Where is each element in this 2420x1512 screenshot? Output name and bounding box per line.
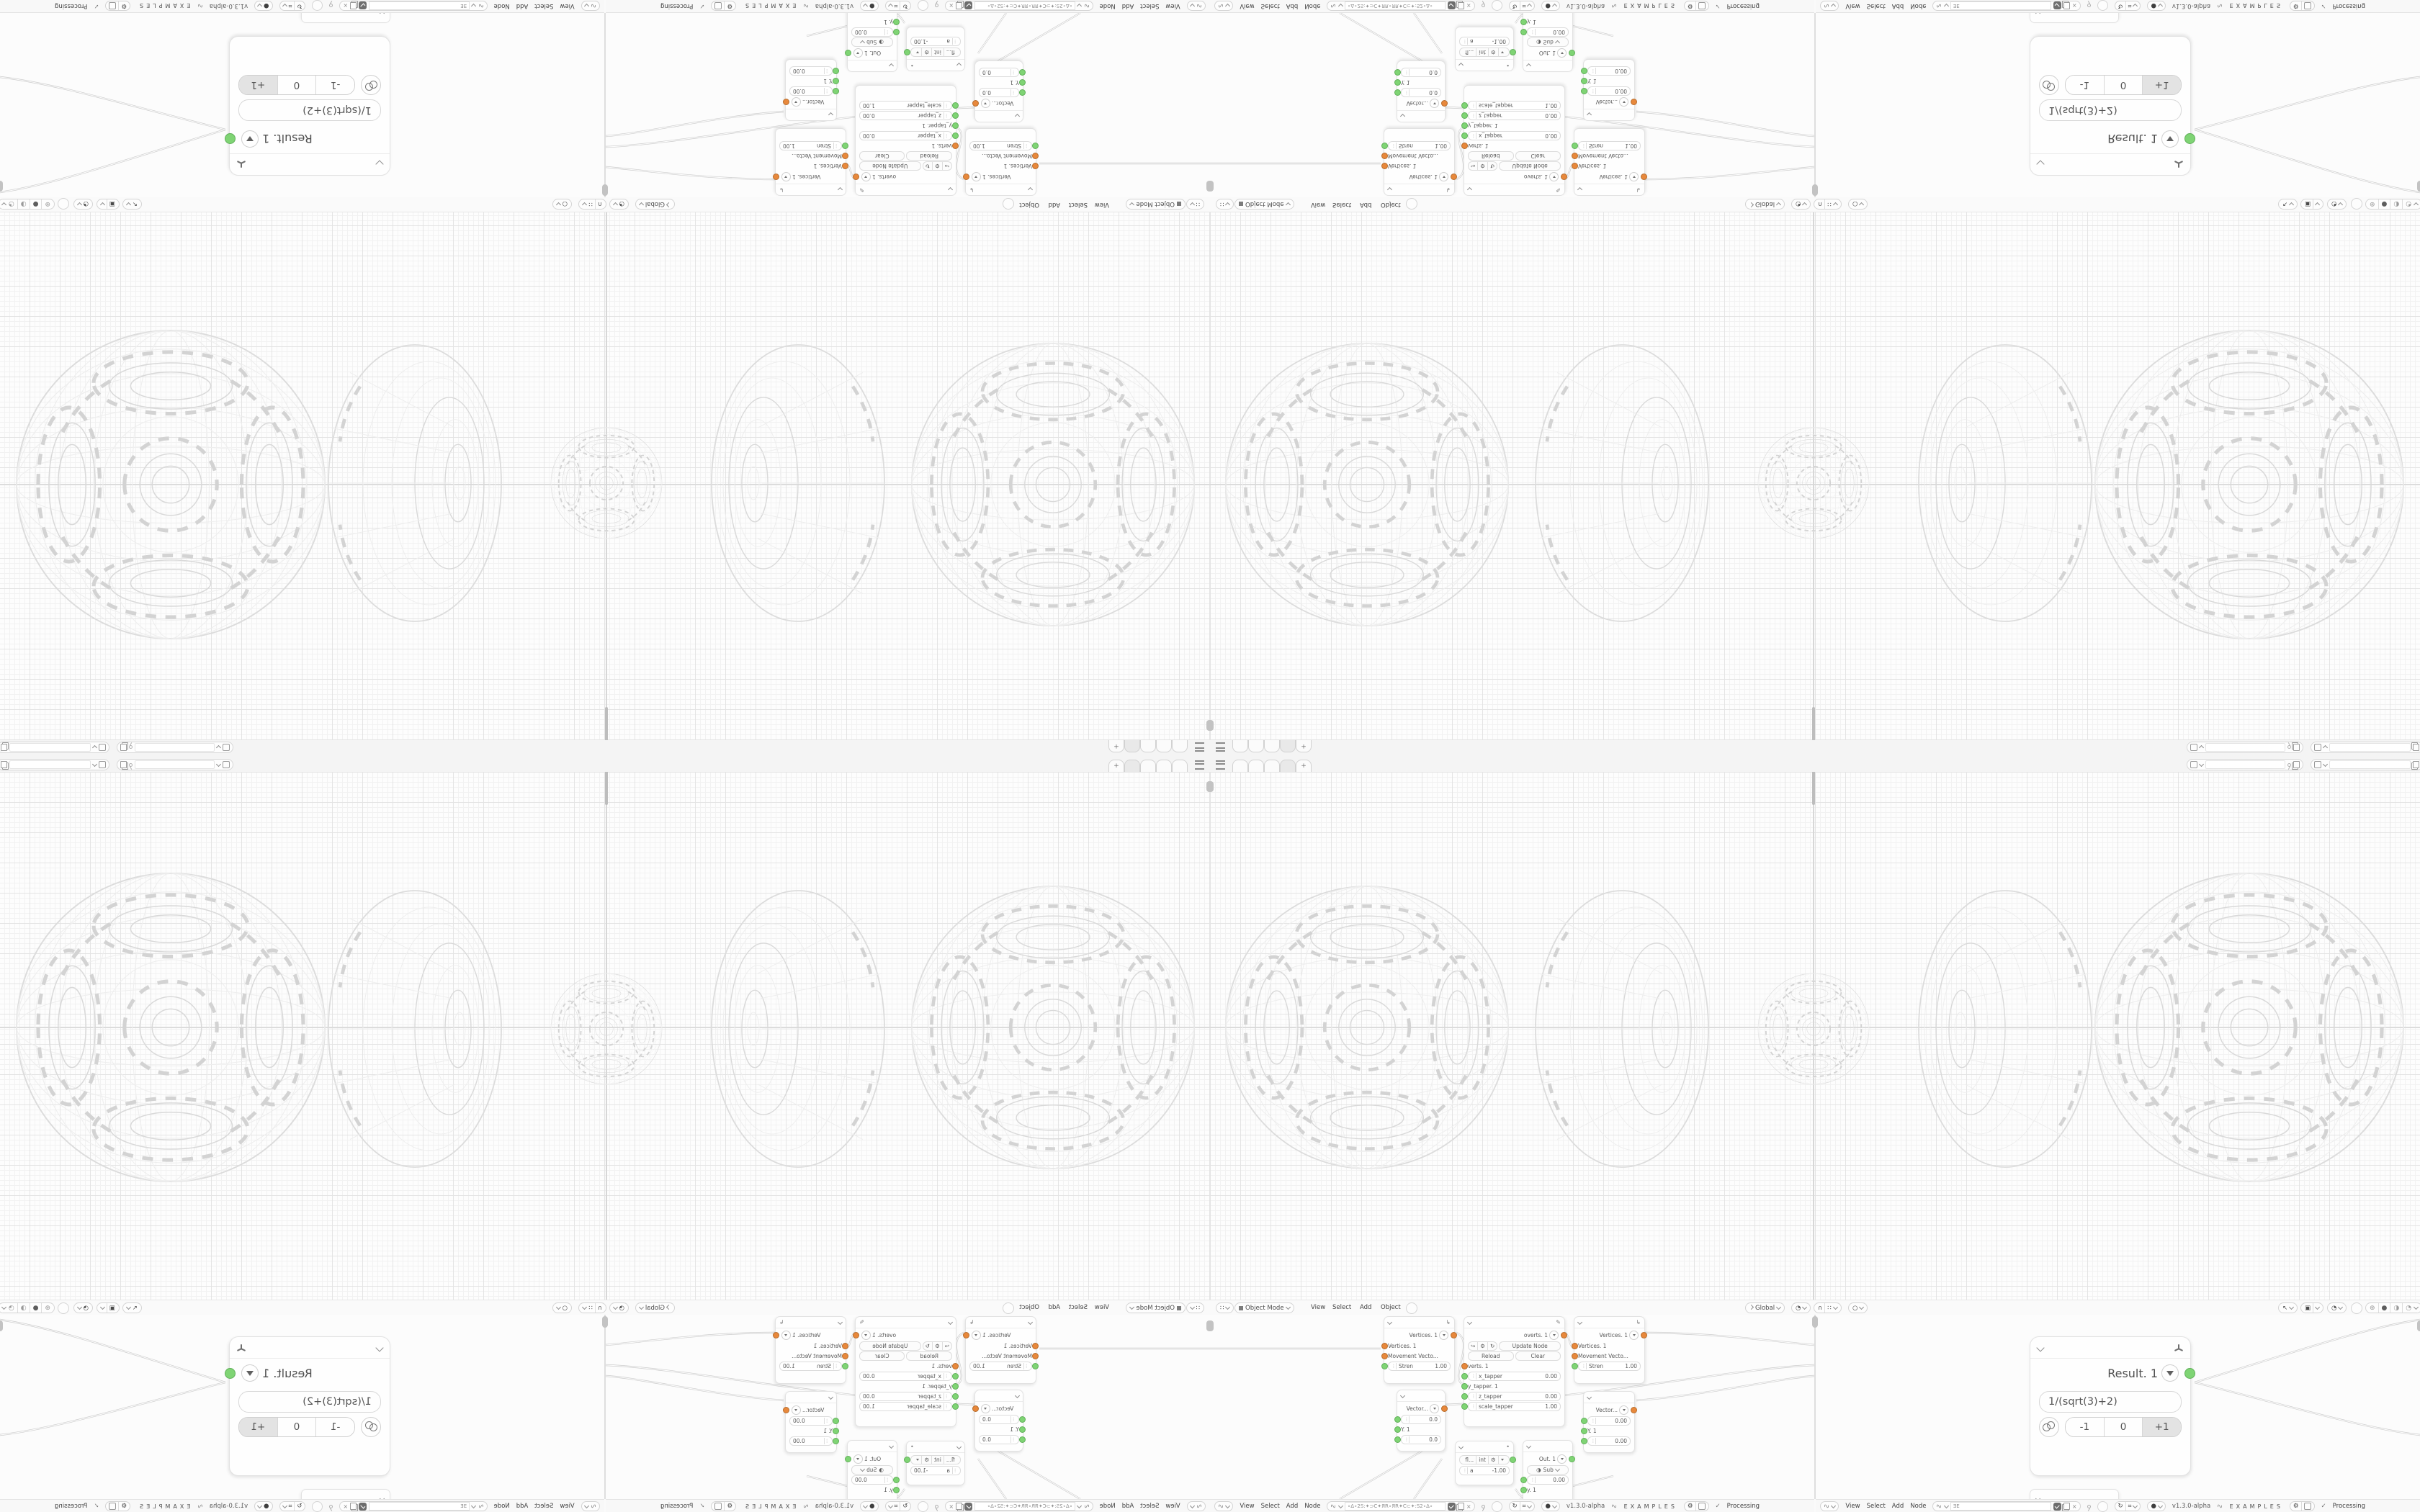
input-socket-scale-tapper[interactable] — [952, 1403, 959, 1410]
scale-tapper-field[interactable]: ⋮ scale_tapper 1.00 — [859, 1402, 952, 1411]
gear-icon[interactable]: ⚙ — [1491, 1457, 1496, 1463]
extra-tools[interactable]: ⚙ — [105, 1501, 130, 1511]
node-number[interactable]: • fl... int ⚙ ⋮ a -1.00 — [1455, 27, 1514, 71]
menu-add[interactable]: Add — [1049, 1304, 1060, 1311]
add-workspace-tab[interactable]: + — [1108, 760, 1124, 773]
update-controls[interactable]: ↻ ⌗ — [2115, 1501, 2141, 1511]
node-partially-visible[interactable] — [301, 1489, 390, 1499]
node-partially-visible[interactable] — [2030, 1489, 2119, 1499]
menu-select[interactable]: Select — [1867, 2, 1886, 9]
node-move-vertices[interactable]: ↳ Vertices. 1 Vertices. 1 Movement Vecto… — [1384, 128, 1455, 196]
tree-selector[interactable]: ∿ ƎE × — [339, 1501, 487, 1511]
collapse-chevron-icon[interactable] — [889, 1443, 894, 1448]
input-socket-x-tapper[interactable] — [952, 1373, 959, 1380]
collapse-chevron-icon[interactable] — [2035, 13, 2040, 16]
output-socket-result[interactable] — [225, 1368, 236, 1379]
dropdown-circle[interactable] — [2161, 1364, 2179, 1382]
scene-name-field[interactable] — [2205, 743, 2285, 752]
menu-add[interactable]: Add — [1360, 201, 1371, 208]
viewlayer-selector[interactable] — [0, 742, 109, 753]
header-circle-button[interactable] — [918, 1, 928, 12]
workspace-tab-active[interactable] — [1124, 739, 1140, 752]
dropdown-circle[interactable] — [1439, 173, 1448, 182]
fake-user-shield-icon[interactable] — [964, 1503, 972, 1511]
dropdown-triangle-icon[interactable] — [916, 52, 919, 54]
pin-icon[interactable] — [935, 1505, 938, 1508]
tree-selector[interactable]: ∿ ƎE × — [339, 1, 487, 11]
int-option[interactable]: int — [934, 1457, 941, 1463]
menu-select[interactable]: Select — [534, 2, 553, 9]
gear-icon[interactable]: ⚙ — [2293, 1503, 2299, 1510]
output-socket-number[interactable] — [904, 1457, 910, 1463]
node-move-vertices[interactable]: ↳ Vertices. 1 Vertices. 1 Movement Vecto… — [775, 128, 846, 196]
shading-material-icon[interactable]: ◑ — [2393, 201, 2399, 208]
draw-mode-dropdown[interactable]: ● — [254, 1501, 272, 1511]
output-socket-vertices[interactable] — [1451, 1332, 1457, 1338]
menu-add[interactable]: Add — [1892, 1503, 1904, 1510]
input-socket-z-tapper[interactable] — [952, 1393, 959, 1400]
input-socket-movement[interactable] — [1032, 1353, 1039, 1359]
area-divider-handle[interactable] — [1206, 1320, 1210, 1331]
gear-icon[interactable]: ⚙ — [121, 1503, 127, 1510]
collapse-chevron-icon[interactable] — [948, 1319, 953, 1324]
dropdown-circle[interactable] — [1629, 173, 1639, 182]
editor-type-button[interactable]: ∷ — [1216, 1302, 1234, 1313]
new-scene-icon[interactable] — [120, 744, 127, 751]
dropdown-circle[interactable] — [241, 130, 259, 148]
header-circle-button[interactable] — [1406, 198, 1417, 210]
collapse-chevron-icon[interactable] — [1400, 114, 1405, 119]
link-icon[interactable]: ↪ — [1471, 163, 1475, 170]
menu-select[interactable]: Select — [534, 1503, 553, 1510]
a-field[interactable]: ⋮ a -1.00 — [1459, 1466, 1510, 1475]
collapse-chevron-icon[interactable] — [375, 1344, 383, 1351]
node-script[interactable]: ✎ overts. 1 ↪ ⚙ ↻ Update Node — [1464, 1316, 1565, 1427]
collapse-chevron-icon[interactable] — [889, 63, 894, 68]
reload-button[interactable]: Reload — [1468, 1351, 1514, 1361]
node-script[interactable]: ✎ overts. 1 ↪ ⚙ ↻ Update Node — [855, 1316, 956, 1427]
mode-dropdown[interactable]: Object Mode — [1126, 1302, 1186, 1313]
input-socket-x-tapper[interactable] — [1461, 1373, 1468, 1380]
input-socket-y[interactable] — [1581, 1428, 1587, 1434]
dropdown-circle[interactable] — [2161, 130, 2179, 148]
output-socket-overts[interactable] — [853, 1332, 859, 1338]
examples-menu[interactable]: EXAMPLES — [743, 1503, 796, 1510]
value-field[interactable]: ⋮ 0.00 — [851, 1475, 893, 1485]
node-vector-in[interactable]: Vector... ⋮ 0.00 Y. 1 ⋮ 0.00 — [785, 1391, 837, 1453]
node-move-vertices[interactable]: ↳ Vertices. 1 Vertices. 1 Movement Vecto… — [965, 1316, 1036, 1384]
header-circle-button[interactable] — [2351, 198, 2362, 210]
workspace-tab-active[interactable] — [1280, 760, 1296, 773]
editor-split-divider[interactable] — [1814, 1315, 1816, 1499]
menu-add[interactable]: Add — [1122, 1503, 1134, 1510]
z-field[interactable]: ⋮ 0.00 — [1587, 1436, 1631, 1446]
editor-type-button[interactable]: ∿ — [1187, 1501, 1206, 1511]
input-socket-z-tapper[interactable] — [1461, 1393, 1468, 1400]
workspace-tab[interactable] — [1248, 739, 1264, 752]
plus-one-button[interactable]: +1 — [2142, 1418, 2181, 1436]
menu-view[interactable]: View — [1311, 1304, 1325, 1311]
editor-split-divider[interactable] — [604, 13, 606, 197]
scene-name-field[interactable] — [2205, 760, 2285, 769]
input-socket-vertices[interactable] — [1572, 1343, 1578, 1349]
input-socket-y-tapper[interactable] — [1461, 1383, 1468, 1390]
extra-tools[interactable]: ⚙ — [2290, 1501, 2315, 1511]
refresh-icon[interactable]: ↻ — [1512, 1503, 1518, 1510]
workspace-tab[interactable] — [1156, 760, 1172, 773]
menu-view[interactable]: View — [1240, 1503, 1254, 1510]
snap-target-button[interactable]: ◔ — [609, 1302, 629, 1313]
proportional-editing-toggle[interactable]: ○ — [552, 1302, 572, 1313]
mode-dropdown[interactable]: Object Mode — [1234, 199, 1294, 210]
draw-mode-dropdown[interactable]: ● — [254, 1, 272, 11]
transform-orientation-dropdown[interactable]: Global — [635, 1302, 675, 1313]
output-socket-vector[interactable] — [972, 101, 979, 107]
menu-select[interactable]: Select — [1069, 1304, 1088, 1311]
input-socket-strength[interactable] — [1381, 1363, 1388, 1369]
console-icon[interactable] — [1698, 1503, 1706, 1510]
node-editor-right[interactable]: Result. 1 1/(sqrt(3)+2) -1 0 +1 — [0, 13, 604, 197]
input-socket-z[interactable] — [1581, 68, 1587, 75]
x-tapper-field[interactable]: ⋮ x_tapper 0.00 — [1468, 132, 1561, 141]
header-circle-button[interactable] — [1003, 1302, 1014, 1314]
scene-selector[interactable] — [2187, 759, 2303, 770]
update-node-button[interactable]: Update Node — [859, 162, 921, 171]
dropdown-circle[interactable] — [781, 173, 791, 182]
menu-select[interactable]: Select — [1261, 2, 1280, 9]
formula-field[interactable]: 1/(sqrt(3)+2) — [2039, 99, 2182, 121]
node-partially-visible[interactable] — [2030, 13, 2119, 23]
console-icon[interactable] — [714, 2, 722, 9]
menu-select[interactable]: Select — [1867, 1503, 1886, 1510]
collapse-chevron-icon[interactable] — [1467, 1319, 1472, 1324]
update-node-button[interactable]: Update Node — [1499, 162, 1561, 171]
workspace-tab[interactable] — [1232, 739, 1248, 752]
unlink-icon[interactable]: × — [343, 3, 348, 9]
fake-user-shield-icon[interactable] — [1448, 2, 1456, 10]
divider-handle[interactable] — [1812, 1316, 1818, 1328]
node-out[interactable]: Out. 1 ◑ Sub ⋮ 0.00 y. 1 — [847, 13, 897, 72]
menu-object[interactable]: Object — [1381, 201, 1401, 208]
zero-button[interactable]: 0 — [278, 76, 317, 94]
header-circle-button[interactable] — [2097, 1501, 2108, 1512]
dropdown-circle[interactable] — [972, 1331, 981, 1340]
viewlayer-name-field[interactable] — [2329, 760, 2411, 769]
menu-view[interactable]: View — [1095, 1304, 1109, 1311]
float-int-switch[interactable]: fl... int ⚙ — [910, 1455, 961, 1464]
x-field[interactable]: ⋮ 0.0 — [1401, 1415, 1441, 1424]
examples-menu[interactable]: EXAMPLES — [1624, 1503, 1677, 1510]
output-socket-vector[interactable] — [1441, 1405, 1448, 1412]
fake-user-shield-icon[interactable] — [359, 1503, 367, 1511]
main-menu-icon[interactable] — [1195, 742, 1204, 752]
refresh-icon[interactable]: ↻ — [1512, 2, 1518, 9]
node-editor-left[interactable]: ↳ Vertices. 1 Vertices. 1 Movement Vecto… — [606, 1315, 1210, 1499]
add-workspace-tab[interactable]: + — [1296, 739, 1312, 752]
menu-add[interactable]: Add — [1360, 1304, 1371, 1311]
gizmo-toggle[interactable]: ↖ — [122, 1302, 142, 1313]
input-socket-y[interactable] — [893, 1487, 900, 1493]
overlays-toggle[interactable]: ▣ — [97, 1302, 120, 1313]
input-socket-strength[interactable] — [1032, 1363, 1039, 1369]
input-socket-value[interactable] — [1520, 1477, 1527, 1483]
x-field[interactable]: ⋮ 0.0 — [979, 1415, 1019, 1424]
mode-dropdown[interactable]: Object Mode — [1126, 199, 1186, 210]
strength-field[interactable]: ⋮ Stren 1.00 — [1388, 1362, 1451, 1371]
collapse-chevron-icon[interactable] — [828, 112, 833, 117]
editor-type-button[interactable]: ∷ — [1186, 1302, 1204, 1313]
collapse-chevron-icon[interactable] — [2036, 1344, 2044, 1351]
collapse-chevron-icon[interactable] — [375, 160, 383, 168]
input-socket-strength[interactable] — [842, 1363, 848, 1369]
link-toggle-icon[interactable] — [2039, 1417, 2059, 1437]
viewlayer-selector[interactable] — [0, 759, 109, 770]
x-field[interactable]: ⋮ 0.00 — [1587, 1416, 1631, 1426]
script-tools-buttons[interactable]: ↪ ⚙ ↻ — [923, 162, 952, 171]
refresh-icon[interactable]: ↻ — [902, 1503, 907, 1510]
int-option[interactable]: int — [1479, 1457, 1486, 1463]
operation-dropdown[interactable]: ◑ Sub — [851, 1465, 893, 1475]
workspace-tab[interactable] — [1248, 760, 1264, 773]
menu-object[interactable]: Object — [1381, 1304, 1401, 1311]
console-icon[interactable] — [2304, 1503, 2311, 1510]
z-field[interactable]: ⋮ 0.00 — [789, 1436, 833, 1446]
tree-name-field[interactable]: ∘Δ∘2S:✦⊃C✦ЯR∘ЯR✦C⊂✦:S2∘Δ∘ — [974, 1, 1075, 10]
gear-icon[interactable]: ⚙ — [2293, 2, 2299, 9]
menu-view[interactable]: View — [1165, 1503, 1180, 1510]
new-tree-icon[interactable] — [1458, 1503, 1464, 1510]
header-circle-button[interactable] — [1492, 1, 1502, 12]
input-socket-movement[interactable] — [1572, 153, 1578, 160]
proportional-editing-toggle[interactable]: ○ — [552, 199, 572, 210]
clear-button[interactable]: Clear — [859, 1351, 905, 1361]
input-socket-x[interactable] — [1394, 90, 1401, 96]
gear-icon[interactable]: ⚙ — [1688, 2, 1693, 9]
input-socket-value[interactable] — [1520, 30, 1527, 36]
fake-user-shield-icon[interactable] — [2053, 2, 2061, 10]
dropdown-triangle-icon[interactable] — [1501, 1459, 1504, 1461]
node-partially-visible[interactable] — [301, 13, 390, 23]
extra-tools[interactable]: ⚙ — [1684, 1, 1709, 11]
refresh-icon[interactable]: ↻ — [297, 1503, 302, 1510]
tree-selector[interactable]: ∿ ƎE × — [1932, 1501, 2080, 1511]
strength-field[interactable]: ⋮ Stren 1.00 — [1578, 142, 1641, 151]
menu-add[interactable]: Add — [1286, 1503, 1298, 1510]
fake-user-shield-icon[interactable] — [964, 2, 972, 10]
snap-toggle[interactable]: ∩ ∷ — [578, 1302, 606, 1313]
scene-selector[interactable] — [117, 759, 233, 770]
node-move-vertices[interactable]: ↳ Vertices. 1 Vertices. 1 Movement Vecto… — [1384, 1316, 1455, 1384]
input-socket-strength[interactable] — [1572, 143, 1578, 150]
viewlayer-name-field[interactable] — [9, 760, 91, 769]
clear-button[interactable]: Clear — [1515, 152, 1561, 161]
area-divider-handle[interactable] — [2417, 1320, 2420, 1331]
examples-menu[interactable]: EXAMPLES — [1624, 3, 1677, 9]
strength-field[interactable]: ⋮ Stren 1.00 — [779, 142, 842, 151]
tree-selector[interactable]: ∿ ∘Δ∘2S:✦⊃C✦ЯR∘ЯR✦C⊂✦:S2∘Δ∘ × — [945, 1, 1093, 11]
3d-viewport[interactable] — [0, 212, 1210, 740]
new-tree-icon[interactable] — [2063, 2, 2070, 9]
editor-type-button[interactable]: ∿ — [581, 1501, 600, 1511]
workspace-tab[interactable] — [1232, 760, 1248, 773]
tree-selector[interactable]: ∿ ∘Δ∘2S:✦⊃C✦ЯR∘ЯR✦C⊂✦:S2∘Δ∘ × — [1327, 1501, 1474, 1511]
mode-dropdown[interactable]: Object Mode — [1234, 1302, 1294, 1313]
value-field[interactable]: ⋮ 0.00 — [1527, 1475, 1569, 1485]
pin-icon[interactable] — [2287, 763, 2291, 767]
input-socket-y[interactable] — [1019, 1426, 1026, 1433]
editor-split-divider[interactable] — [604, 1315, 606, 1499]
new-viewlayer-icon[interactable] — [2413, 761, 2419, 768]
link-toggle-icon[interactable] — [361, 75, 381, 95]
input-socket-movement[interactable] — [1381, 1353, 1388, 1359]
snap-toggle[interactable]: ∩ ∷ — [578, 199, 606, 210]
update-controls[interactable]: ↻ ⌗ — [885, 1, 912, 11]
input-socket-y[interactable] — [1581, 78, 1587, 85]
output-socket-result[interactable] — [2184, 1368, 2195, 1379]
draw-mode-dropdown[interactable]: ● — [860, 1501, 878, 1511]
dropdown-circle[interactable] — [861, 173, 871, 182]
input-socket-z[interactable] — [1394, 1436, 1401, 1443]
extra-tools[interactable]: ⚙ — [711, 1, 736, 11]
menu-add[interactable]: Add — [1286, 2, 1298, 9]
a-field[interactable]: ⋮ a -1.00 — [910, 37, 961, 47]
x-field[interactable]: ⋮ 0.00 — [789, 1416, 833, 1426]
pin-icon[interactable] — [1482, 4, 1485, 8]
pin-icon[interactable] — [2087, 4, 2091, 8]
editor-type-button[interactable]: ∷ — [1216, 199, 1234, 210]
float-int-switch[interactable]: fl... int ⚙ — [1459, 1455, 1510, 1464]
output-socket-result[interactable] — [225, 134, 236, 145]
operation-dropdown[interactable]: ◑ Sub — [851, 38, 893, 48]
collapse-chevron-icon[interactable] — [1015, 1392, 1020, 1398]
menu-view[interactable]: View — [1165, 2, 1180, 9]
int-option[interactable]: int — [1479, 50, 1486, 56]
collapse-chevron-icon[interactable] — [380, 13, 385, 16]
output-socket-vertices[interactable] — [773, 174, 779, 181]
script-tools-buttons[interactable]: ↪ ⚙ ↻ — [923, 1341, 952, 1351]
pin-icon[interactable] — [129, 763, 133, 767]
snap-toggle[interactable]: ∩ ∷ — [1814, 1302, 1842, 1313]
output-socket-overts[interactable] — [1561, 1332, 1567, 1338]
new-viewlayer-icon[interactable] — [2413, 744, 2419, 751]
node-vector-in[interactable]: Vector... ⋮ 0.00 Y. 1 ⋮ 0.00 — [785, 59, 837, 121]
update-controls[interactable]: ↻ ⌗ — [885, 1501, 912, 1511]
float-int-switch[interactable]: fl... int ⚙ — [910, 48, 961, 58]
node-editor-area[interactable]: ↳ Vertices. 1 Vertices. 1 Movement Vecto… — [1210, 13, 2420, 197]
new-tree-icon[interactable] — [350, 2, 357, 9]
strength-field[interactable]: ⋮ Stren 1.00 — [1388, 142, 1451, 151]
z-tapper-field[interactable]: ⋮ z_tapper 0.00 — [1468, 1392, 1561, 1401]
console-icon[interactable] — [1698, 2, 1706, 9]
node-script[interactable]: ✎ overts. 1 ↪ ⚙ ↻ Update Node — [1464, 85, 1565, 196]
menu-select[interactable]: Select — [1261, 1503, 1280, 1510]
input-socket-z-tapper[interactable] — [1461, 113, 1468, 120]
node-number[interactable]: • fl... int ⚙ ⋮ a -1.00 — [906, 27, 965, 71]
strength-field[interactable]: ⋮ Stren 1.00 — [969, 142, 1032, 151]
new-tree-icon[interactable] — [956, 2, 962, 9]
shading-solid-icon[interactable]: ● — [33, 1305, 39, 1312]
pin-icon[interactable] — [2087, 1505, 2091, 1508]
output-socket-out[interactable] — [1569, 1456, 1575, 1462]
add-workspace-tab[interactable]: + — [1296, 760, 1312, 773]
menu-node[interactable]: Node — [1304, 1503, 1320, 1510]
node-editor-right[interactable]: Result. 1 1/(sqrt(3)+2) -1 0 +1 — [0, 1315, 604, 1499]
x-field[interactable]: ⋮ 0.00 — [1587, 87, 1631, 96]
dropdown-circle[interactable] — [1430, 1404, 1439, 1413]
workspace-tab[interactable] — [1172, 760, 1188, 773]
extra-tools[interactable]: ⚙ — [105, 1, 130, 11]
pin-icon[interactable] — [329, 4, 333, 8]
float-option[interactable]: fl... — [946, 1457, 955, 1463]
gear-icon[interactable]: ⚙ — [727, 2, 732, 9]
draw-mode-dropdown[interactable]: ● — [860, 1, 878, 11]
gear-icon[interactable]: ⚙ — [121, 2, 127, 9]
editor-type-button[interactable]: ∿ — [1187, 1, 1206, 11]
formula-field[interactable]: 1/(sqrt(3)+2) — [238, 99, 381, 121]
gear-icon[interactable]: ⚙ — [1491, 50, 1496, 56]
input-socket-vertices[interactable] — [842, 1343, 848, 1349]
collapse-chevron-icon[interactable] — [1387, 1319, 1392, 1324]
dropdown-circle[interactable] — [1629, 1331, 1639, 1340]
snap-target-button[interactable]: ◔ — [1791, 199, 1811, 210]
a-field[interactable]: ⋮ a -1.00 — [1459, 37, 1510, 47]
node-editor-right[interactable]: Result. 1 1/(sqrt(3)+2) -1 0 +1 — [1816, 13, 2420, 197]
collapse-chevron-icon[interactable] — [948, 187, 953, 192]
tree-selector[interactable]: ∿ ƎE × — [1932, 1, 2080, 11]
refresh-icon[interactable]: ↻ — [2118, 1503, 2123, 1510]
tree-name-field[interactable]: ƎE — [369, 1, 470, 10]
viewlayer-selector[interactable] — [2311, 742, 2420, 753]
output-socket-number[interactable] — [904, 50, 910, 56]
workspace-tab[interactable] — [1264, 760, 1280, 773]
shading-rendered-icon[interactable]: ◔ — [2406, 1305, 2411, 1312]
node-number[interactable]: • fl... int ⚙ ⋮ a -1.00 — [906, 1441, 965, 1485]
collapse-chevron-icon[interactable] — [1400, 1392, 1405, 1398]
draw-mode-dropdown[interactable]: ● — [2147, 1501, 2165, 1511]
link-icon[interactable]: ↪ — [945, 1343, 949, 1349]
node-editor-left[interactable]: ↳ Vertices. 1 Vertices. 1 Movement Vecto… — [606, 13, 1210, 197]
node-out[interactable]: Out. 1 ◑ Sub ⋮ 0.00 y. 1 — [1523, 1440, 1573, 1499]
divider-handle[interactable] — [602, 1316, 608, 1328]
fake-user-shield-icon[interactable] — [359, 2, 367, 10]
main-menu-icon[interactable] — [1216, 760, 1225, 770]
collapse-chevron-icon[interactable] — [1015, 114, 1020, 119]
input-socket-z[interactable] — [1581, 1438, 1587, 1444]
dropdown-circle[interactable] — [1557, 1454, 1567, 1464]
workspace-tab[interactable] — [1156, 739, 1172, 752]
header-circle-button[interactable] — [58, 198, 69, 210]
x-field[interactable]: ⋮ 0.0 — [979, 89, 1019, 98]
menu-node[interactable]: Node — [1910, 2, 1926, 9]
menu-view[interactable]: View — [1845, 1503, 1860, 1510]
int-option[interactable]: int — [934, 50, 941, 56]
dropdown-circle[interactable] — [792, 1405, 801, 1415]
menu-select[interactable]: Select — [1069, 201, 1088, 208]
new-scene-icon[interactable] — [2293, 761, 2300, 768]
update-node-button[interactable]: Update Node — [1499, 1341, 1561, 1351]
z-field[interactable]: ⋮ 0.00 — [789, 67, 833, 76]
float-int-switch[interactable]: fl... int ⚙ — [1459, 48, 1510, 58]
new-viewlayer-icon[interactable] — [1, 744, 7, 751]
z-tapper-field[interactable]: ⋮ z_tapper 0.00 — [859, 112, 952, 121]
operation-dropdown[interactable]: ◑ Sub — [1527, 38, 1569, 48]
fake-user-shield-icon[interactable] — [1448, 1503, 1456, 1511]
editor-type-button[interactable]: ∿ — [1214, 1501, 1233, 1511]
header-circle-button[interactable] — [918, 1501, 928, 1512]
refresh-icon[interactable]: ↻ — [297, 2, 302, 9]
menu-node[interactable]: Node — [1910, 1503, 1926, 1510]
output-socket-overts[interactable] — [853, 174, 859, 181]
